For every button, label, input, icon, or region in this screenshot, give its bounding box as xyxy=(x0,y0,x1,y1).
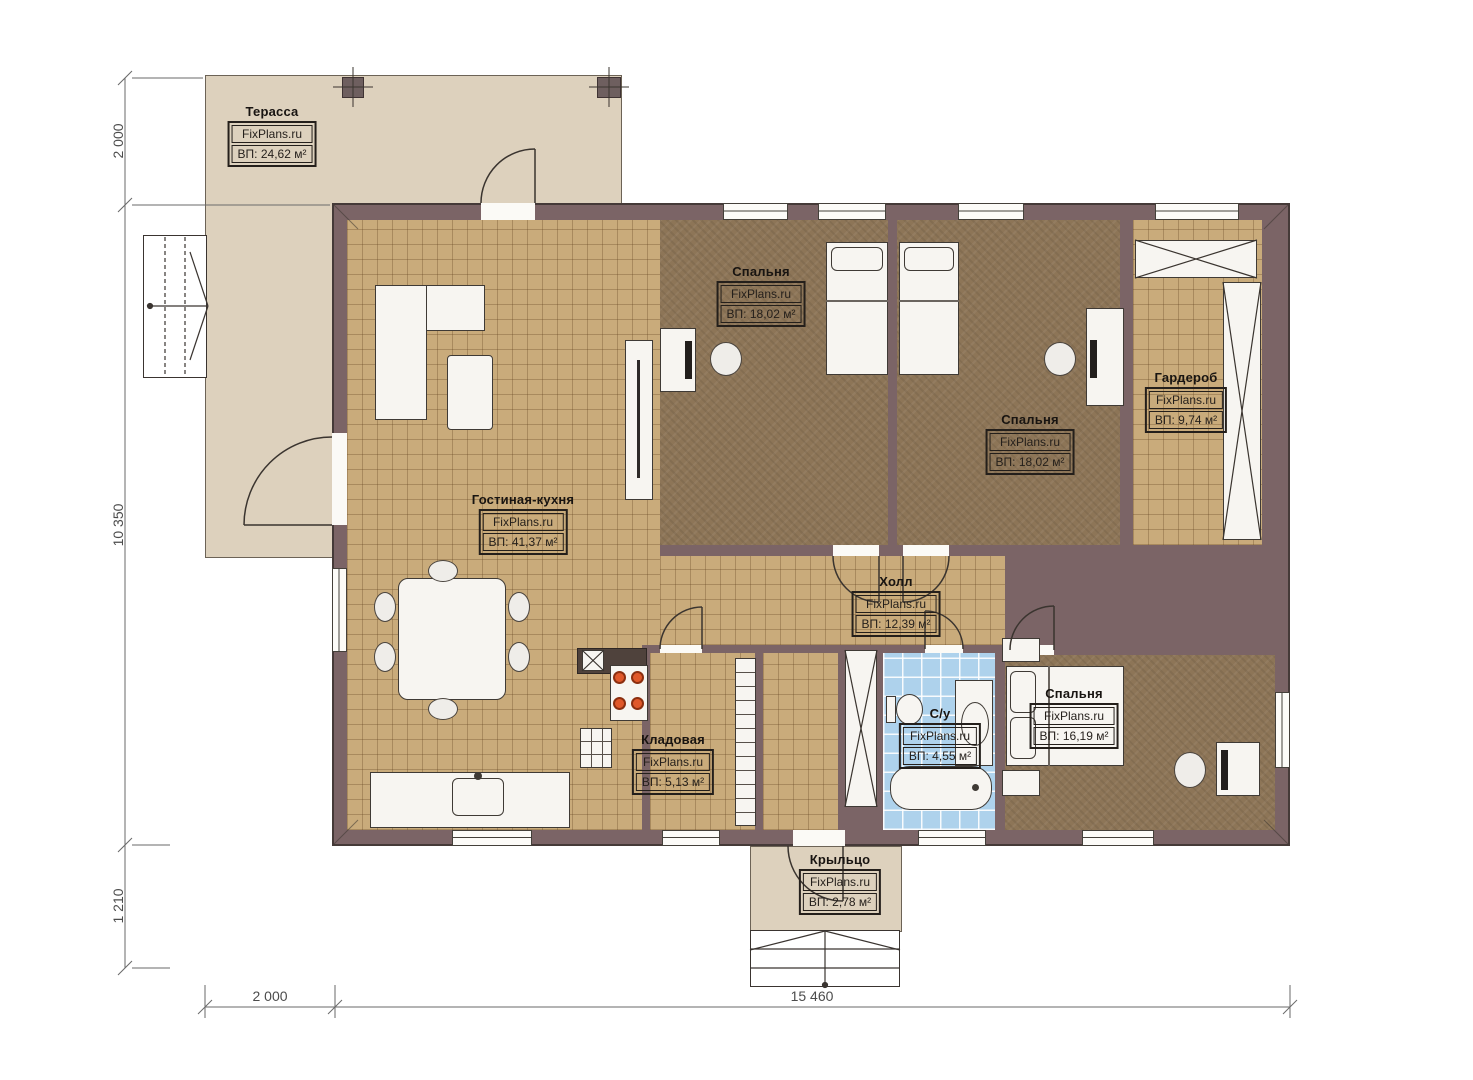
bed-fold-line xyxy=(826,300,888,302)
room-label-bedroom1: Спальня FixPlans.ru ВП: 18,02 м² xyxy=(717,264,806,327)
wall-closet-bath xyxy=(877,650,883,830)
room-label-hall: Холл FixPlans.ru ВП: 12,39 м² xyxy=(852,574,941,637)
watermark-text: FixPlans.ru xyxy=(483,513,564,531)
window-bedroom2 xyxy=(958,203,1024,220)
dining-table xyxy=(398,578,506,700)
monitor-bedroom3 xyxy=(1221,750,1228,790)
terrace-pillar xyxy=(597,77,621,98)
room-area-text: ВП: 9,74 м² xyxy=(1149,411,1223,429)
dimension-bottom-left: 2 000 xyxy=(252,988,287,1004)
room-name: Гардероб xyxy=(1145,370,1227,385)
door-opening-pantry xyxy=(660,645,702,653)
door-opening-terrace-left xyxy=(332,433,347,525)
watermark-text: FixPlans.ru xyxy=(721,285,802,303)
nightstand xyxy=(1002,770,1040,796)
sofa-left xyxy=(375,285,427,420)
desk-chair-bedroom3 xyxy=(1174,752,1206,788)
room-area-text: ВП: 5,13 м² xyxy=(636,773,710,791)
room-area-text: ВП: 41,37 м² xyxy=(483,533,564,551)
room-name: Кладовая xyxy=(632,732,714,747)
window-hall-bottom xyxy=(918,830,986,846)
room-info-box: FixPlans.ru ВП: 41,37 м² xyxy=(479,509,568,555)
wall-bedroom1-bedroom2 xyxy=(888,220,897,545)
window-wardrobe xyxy=(1155,203,1239,220)
watermark-text: FixPlans.ru xyxy=(990,433,1071,451)
watermark-text: FixPlans.ru xyxy=(1034,707,1115,725)
coffee-table xyxy=(447,355,493,430)
room-name: С/у xyxy=(899,706,981,721)
room-info-box: FixPlans.ru ВП: 18,02 м² xyxy=(986,429,1075,475)
window-dining xyxy=(332,568,347,652)
watermark-text: FixPlans.ru xyxy=(232,125,313,143)
room-area-text: ВП: 4,55 м² xyxy=(903,747,977,765)
wall-wardrobe-right xyxy=(1262,220,1275,545)
door-opening-entrance xyxy=(793,830,845,846)
room-name: Холл xyxy=(852,574,941,589)
floor-plan-canvas: Терасса FixPlans.ru ВП: 24,62 м² Гостина… xyxy=(0,0,1473,1080)
tv-screen xyxy=(637,360,640,478)
dimension-left-top: 2 000 xyxy=(110,123,126,158)
wall-bathroom-bedroom3 xyxy=(995,653,1005,830)
dimension-bottom-main: 15 460 xyxy=(791,988,834,1004)
room-area-text: ВП: 18,02 м² xyxy=(721,305,802,323)
room-area-text: ВП: 16,19 м² xyxy=(1034,727,1115,745)
room-name: Спальня xyxy=(1030,686,1119,701)
dining-chair xyxy=(508,642,530,672)
room-name: Терасса xyxy=(228,104,317,119)
kitchen-prep-sink xyxy=(582,650,604,671)
door-opening-terrace-top xyxy=(481,203,535,220)
kitchen-sink xyxy=(452,778,504,816)
pillow-bedroom1 xyxy=(831,247,883,271)
door-opening-bedroom1 xyxy=(833,545,879,556)
window-kitchen xyxy=(452,830,532,846)
room-area-text: ВП: 2,78 м² xyxy=(803,893,877,911)
nightstand xyxy=(1002,638,1040,662)
dining-chair xyxy=(428,698,458,720)
room-label-pantry: Кладовая FixPlans.ru ВП: 5,13 м² xyxy=(632,732,714,795)
wardrobe-closet-right xyxy=(1223,282,1261,540)
dining-chair xyxy=(374,592,396,622)
stove-burner xyxy=(613,697,626,710)
watermark-text: FixPlans.ru xyxy=(903,727,977,745)
room-label-porch: Крыльцо FixPlans.ru ВП: 2,78 м² xyxy=(799,852,881,915)
monitor-bedroom2 xyxy=(1090,340,1097,378)
room-label-living-kitchen: Гостиная-кухня FixPlans.ru ВП: 41,37 м² xyxy=(472,492,574,555)
watermark-text: FixPlans.ru xyxy=(803,873,877,891)
monitor-bedroom1 xyxy=(685,341,692,379)
room-info-box: FixPlans.ru ВП: 4,55 м² xyxy=(899,723,981,769)
desk-chair-bedroom1 xyxy=(710,342,742,376)
room-area-text: ВП: 12,39 м² xyxy=(856,615,937,633)
desk-chair-bedroom2 xyxy=(1044,342,1076,376)
room-label-terrace: Терасса FixPlans.ru ВП: 24,62 м² xyxy=(228,104,317,167)
room-name: Спальня xyxy=(717,264,806,279)
room-name: Крыльцо xyxy=(799,852,881,867)
dimension-left-bottom: 1 210 xyxy=(110,888,126,923)
dining-chair xyxy=(428,560,458,582)
door-opening-bedroom2 xyxy=(903,545,949,556)
room-label-wardrobe: Гардероб FixPlans.ru ВП: 9,74 м² xyxy=(1145,370,1227,433)
wall-pantry-right xyxy=(755,653,763,830)
pillow-bedroom2 xyxy=(904,247,954,271)
wardrobe-closet-top xyxy=(1135,240,1257,278)
room-info-box: FixPlans.ru ВП: 24,62 м² xyxy=(228,121,317,167)
toilet-tank xyxy=(886,696,896,723)
room-name: Гостиная-кухня xyxy=(472,492,574,507)
room-info-box: FixPlans.ru ВП: 2,78 м² xyxy=(799,869,881,915)
wall-closet-left xyxy=(838,645,845,830)
kitchen-appliance xyxy=(580,728,612,768)
room-area-text: ВП: 24,62 м² xyxy=(232,145,313,163)
wall-bedrooms-hall xyxy=(660,545,1133,556)
room-info-box: FixPlans.ru ВП: 12,39 м² xyxy=(852,591,941,637)
window-bedroom1-a xyxy=(723,203,788,220)
room-floor-hall-corridor xyxy=(763,653,838,830)
room-label-bedroom2: Спальня FixPlans.ru ВП: 18,02 м² xyxy=(986,412,1075,475)
watermark-text: FixPlans.ru xyxy=(856,595,937,613)
window-bedroom3-bottom xyxy=(1082,830,1154,846)
room-info-box: FixPlans.ru ВП: 18,02 м² xyxy=(717,281,806,327)
terrace-area-left xyxy=(205,204,334,558)
bathtub-faucet xyxy=(972,784,979,791)
hall-closet xyxy=(845,650,877,807)
kitchen-faucet xyxy=(474,772,482,780)
bed-fold-line xyxy=(899,300,959,302)
door-opening-bathroom xyxy=(925,645,963,653)
room-info-box: FixPlans.ru ВП: 9,74 м² xyxy=(1145,387,1227,433)
stove-burner xyxy=(613,671,626,684)
terrace-pillar xyxy=(342,77,364,98)
room-info-box: FixPlans.ru ВП: 16,19 м² xyxy=(1030,703,1119,749)
room-name: Спальня xyxy=(986,412,1075,427)
dimension-left-middle: 10 350 xyxy=(110,504,126,547)
room-label-bathroom: С/у FixPlans.ru ВП: 4,55 м² xyxy=(899,706,981,769)
room-floor-hall xyxy=(660,556,1005,645)
window-bedroom1-b xyxy=(818,203,886,220)
stove-burner xyxy=(631,697,644,710)
porch-steps xyxy=(750,930,900,987)
room-label-bedroom3: Спальня FixPlans.ru ВП: 16,19 м² xyxy=(1030,686,1119,749)
window-pantry xyxy=(662,830,720,846)
watermark-text: FixPlans.ru xyxy=(636,753,710,771)
watermark-text: FixPlans.ru xyxy=(1149,391,1223,409)
window-bedroom3-right xyxy=(1275,692,1290,768)
outdoor-stairs xyxy=(143,235,207,378)
dining-chair xyxy=(374,642,396,672)
room-info-box: FixPlans.ru ВП: 5,13 м² xyxy=(632,749,714,795)
pantry-shelves xyxy=(735,658,756,826)
stove-burner xyxy=(631,671,644,684)
room-area-text: ВП: 18,02 м² xyxy=(990,453,1071,471)
dining-chair xyxy=(508,592,530,622)
